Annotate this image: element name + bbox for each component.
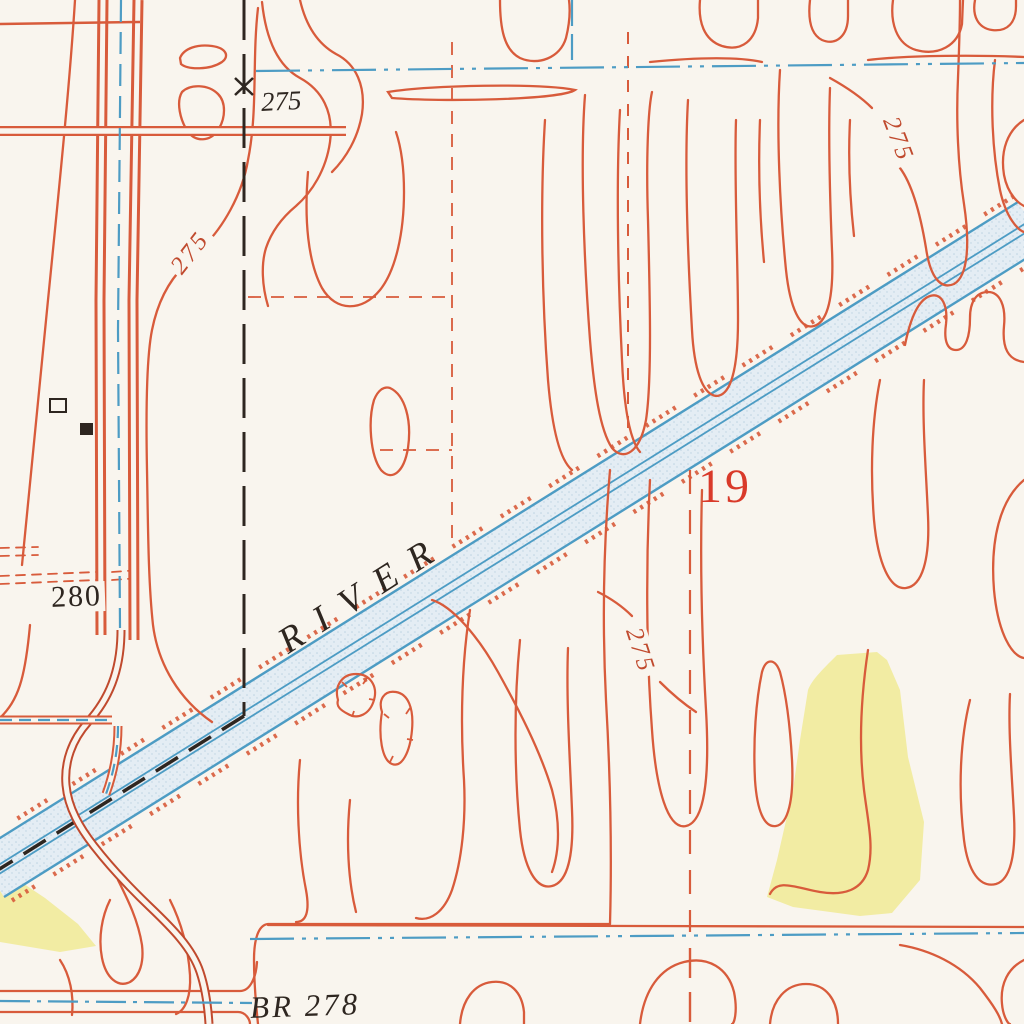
spot-elevation-275: 275 [257,87,305,116]
map-canvas [0,0,1024,1024]
bridge-label-br-278: BR 278 [249,988,360,1023]
section-line-black [235,0,253,716]
buildings [50,399,93,435]
depression-contours [337,674,413,765]
section-number-19: 19 [698,463,752,511]
section-lines-red-dashed [248,32,690,1024]
topo-map-sheet: 275 275 275 275 280 19 RIVER BR 278 [0,0,1024,1024]
contour-label-280: 280 [47,581,105,613]
roads [0,0,346,1024]
